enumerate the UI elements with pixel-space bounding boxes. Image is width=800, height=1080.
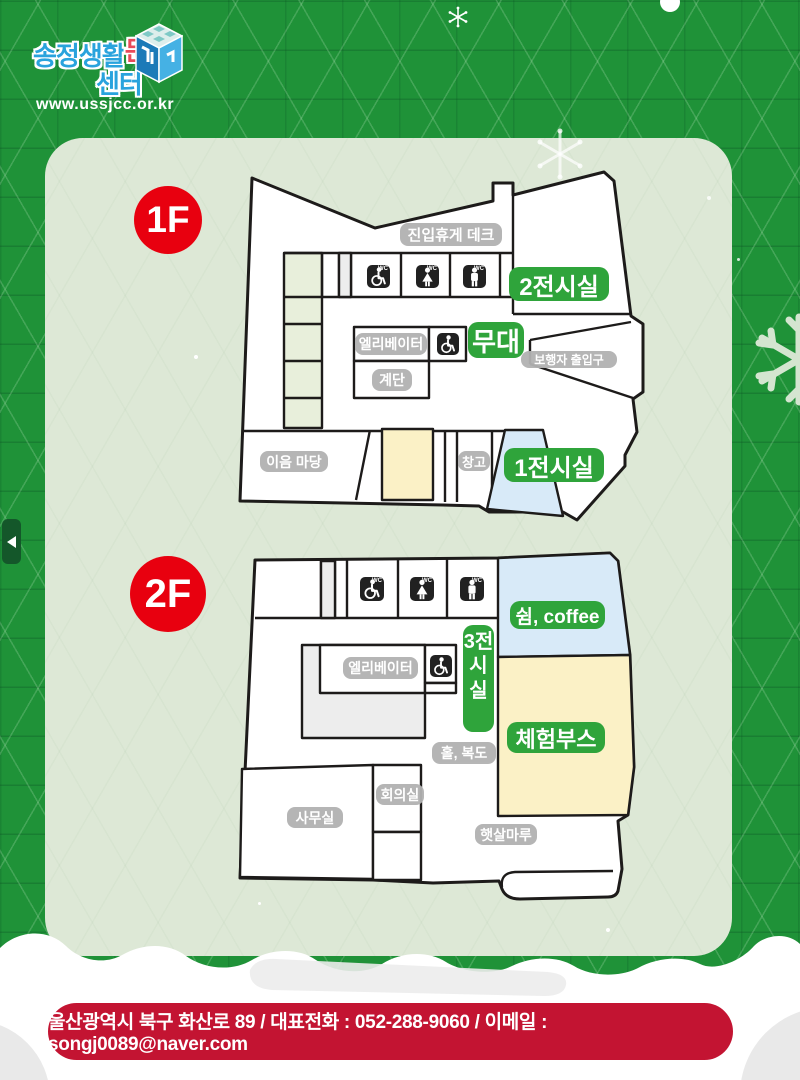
wc-text: WC bbox=[472, 578, 482, 584]
edge-snowflake-icon bbox=[752, 312, 800, 407]
label-booth: 체험부스 bbox=[507, 722, 605, 753]
prev-button[interactable] bbox=[2, 519, 21, 564]
snow-dot bbox=[660, 0, 680, 12]
logo-cube-icon bbox=[135, 22, 183, 96]
logo: 송정생활문화 센터 www.ussjcc.or.kr bbox=[28, 20, 248, 140]
logo-website: www.ussjcc.or.kr bbox=[36, 96, 174, 114]
small-snowflake-icon bbox=[447, 6, 469, 28]
snow-dot bbox=[737, 258, 740, 261]
snow-dot bbox=[194, 355, 198, 359]
label-elevator-1f: 엘리베이터 bbox=[355, 333, 427, 355]
accessible-wc-icon: WC bbox=[360, 577, 384, 601]
narrow-room-1f bbox=[339, 253, 351, 297]
elevator-accessible-icon-1f bbox=[437, 333, 459, 355]
page-background: 송정생활문화 센터 www.ussjcc.or.kr 1F bbox=[0, 0, 800, 1080]
wc-text: WC bbox=[474, 266, 484, 272]
wc-text: WC bbox=[378, 266, 388, 272]
label-sunshine-maru: 햇살마루 bbox=[475, 824, 537, 845]
label-exhibit2: 2전시실 bbox=[509, 267, 609, 301]
green-strip-rooms-1f bbox=[284, 253, 322, 428]
wc-text: WC bbox=[372, 578, 382, 584]
label-stairs: 계단 bbox=[372, 369, 412, 391]
label-storage: 창고 bbox=[458, 451, 490, 471]
footer-contact-bar: 울산광역시 북구 화산로 89 / 대표전화 : 052-288-9060 / … bbox=[48, 1003, 733, 1060]
label-stage: 무대 bbox=[468, 322, 524, 358]
elevator-accessible-icon-2f bbox=[430, 655, 452, 677]
label-elevator-2f: 엘리베이터 bbox=[343, 657, 418, 679]
floor2-plan: 쉼, coffee 3전시실 체험부스 엘리베이터 홀, 복도 회의실 사무실 … bbox=[232, 545, 652, 910]
female-wc-icon: WC bbox=[410, 577, 434, 601]
snow-dot bbox=[561, 195, 565, 199]
label-exhibit1: 1전시실 bbox=[504, 448, 604, 482]
floor2-badge: 2F bbox=[130, 556, 206, 632]
floor1-plan: 진입휴게 데크 2전시실 엘리베이터 무대 보행자 출입구 계단 이음 마당 창… bbox=[232, 168, 648, 532]
label-rest-coffee: 쉼, coffee bbox=[510, 601, 605, 629]
accessible-wc-icon: WC bbox=[367, 265, 390, 288]
label-meeting-room: 회의실 bbox=[376, 784, 424, 805]
female-wc-icon: WC bbox=[416, 265, 439, 288]
prev-arrow-icon bbox=[7, 536, 16, 548]
wc-text: WC bbox=[422, 578, 432, 584]
label-yard: 이음 마당 bbox=[260, 451, 328, 472]
label-exhibit3: 3전시실 bbox=[463, 625, 494, 732]
yellow-room-1f bbox=[382, 429, 433, 500]
label-hall-corridor: 홀, 복도 bbox=[432, 742, 496, 764]
label-office: 사무실 bbox=[287, 807, 343, 828]
snow-dot bbox=[707, 196, 711, 200]
wc-text: WC bbox=[427, 266, 437, 272]
male-wc-icon: WC bbox=[460, 577, 484, 601]
label-deck: 진입휴게 데크 bbox=[400, 223, 502, 246]
male-wc-icon: WC bbox=[463, 265, 486, 288]
floor1-badge: 1F bbox=[134, 186, 202, 254]
label-pedestrian-entrance: 보행자 출입구 bbox=[521, 351, 617, 368]
footer-contact-text: 울산광역시 북구 화산로 89 / 대표전화 : 052-288-9060 / … bbox=[48, 1007, 733, 1056]
narrow-room-2f bbox=[321, 561, 335, 618]
